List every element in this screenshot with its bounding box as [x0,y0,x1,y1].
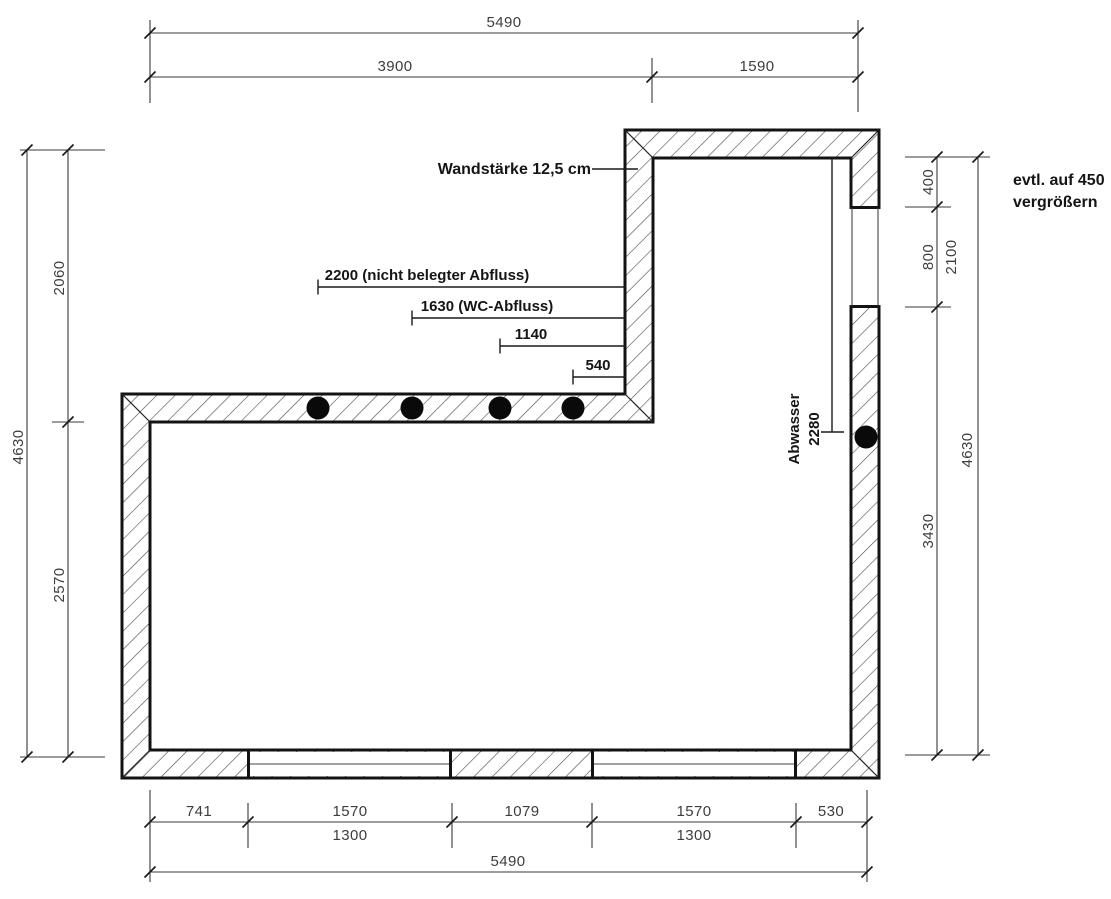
dim-left-upper: 2060 [51,261,68,296]
dim-bottom-4: 1570 [677,803,712,820]
dim-top-left: 3900 [378,58,413,75]
leader-label-1140: 1140 [515,326,548,343]
dim-bottom-window-2: 1300 [677,827,712,844]
dim-top-overall: 5490 [487,14,522,31]
wall-thickness-note: Wandstärke 12,5 cm [438,161,638,178]
abwasser-label: Abwasser [786,393,803,464]
dimensions-right: 400 800 2100 3430 4630 [905,152,990,761]
dimensions-bottom: 741 1570 1079 1570 530 1300 1300 5490 [145,790,873,882]
enlarge-note-line2: vergrößern [1013,194,1097,211]
dimensions-top: 5490 3900 1590 [145,14,864,112]
wall-thickness-label: Wandstärke 12,5 cm [438,161,591,178]
drain-dot-4 [562,397,585,420]
leader-label-2200: 2200 (nicht belegter Abfluss) [325,267,530,284]
enlarge-note-line1: evtl. auf 450 [1013,172,1105,189]
dim-right-window: 800 [920,244,937,270]
dimension-ticks [22,145,74,763]
leader-label-1630: 1630 (WC-Abfluss) [421,298,554,315]
dim-bottom-2: 1570 [333,803,368,820]
dimensions-left: 4630 2060 2570 [10,145,105,763]
bottom-wall-opening-1 [249,750,451,778]
sewage-drain-dot [855,426,878,449]
dim-bottom-5: 530 [818,803,844,820]
drain-dot-3 [489,397,512,420]
dim-bottom-overall: 5490 [491,853,526,870]
window-opening-mask [848,209,882,306]
dim-left-overall: 4630 [10,430,27,465]
dim-right-overall: 4630 [959,433,976,468]
dim-right-window-total: 2100 [943,240,960,275]
drain-dot-2 [401,397,424,420]
right-wall-window [848,208,882,307]
drain-dot-1 [307,397,330,420]
drain-leaders: 2200 (nicht belegter Abfluss) 1630 (WC-A… [318,267,626,385]
leader-label-540: 540 [585,357,610,374]
dim-bottom-3: 1079 [505,803,540,820]
wall-structure [122,130,882,778]
dim-bottom-window-1: 1300 [333,827,368,844]
floor-plan-drawing: 5490 3900 1590 4630 2060 2570 [0,0,1111,899]
floor-plan-canvas: 5490 3900 1590 4630 2060 2570 [0,0,1111,899]
dim-right-below-window: 3430 [920,514,937,549]
abwasser-value: 2280 [806,412,823,445]
dim-left-lower: 2570 [51,568,68,603]
abwasser-annotation: Abwasser 2280 [786,158,844,464]
dim-top-right: 1590 [740,58,775,75]
wall-outline [122,130,879,778]
dim-right-above-window: 400 [920,169,937,195]
enlarge-note: evtl. auf 450 vergrößern [1013,172,1105,211]
bottom-wall-opening-2 [593,750,796,778]
corner-miters [122,130,879,778]
dim-bottom-1: 741 [186,803,212,820]
